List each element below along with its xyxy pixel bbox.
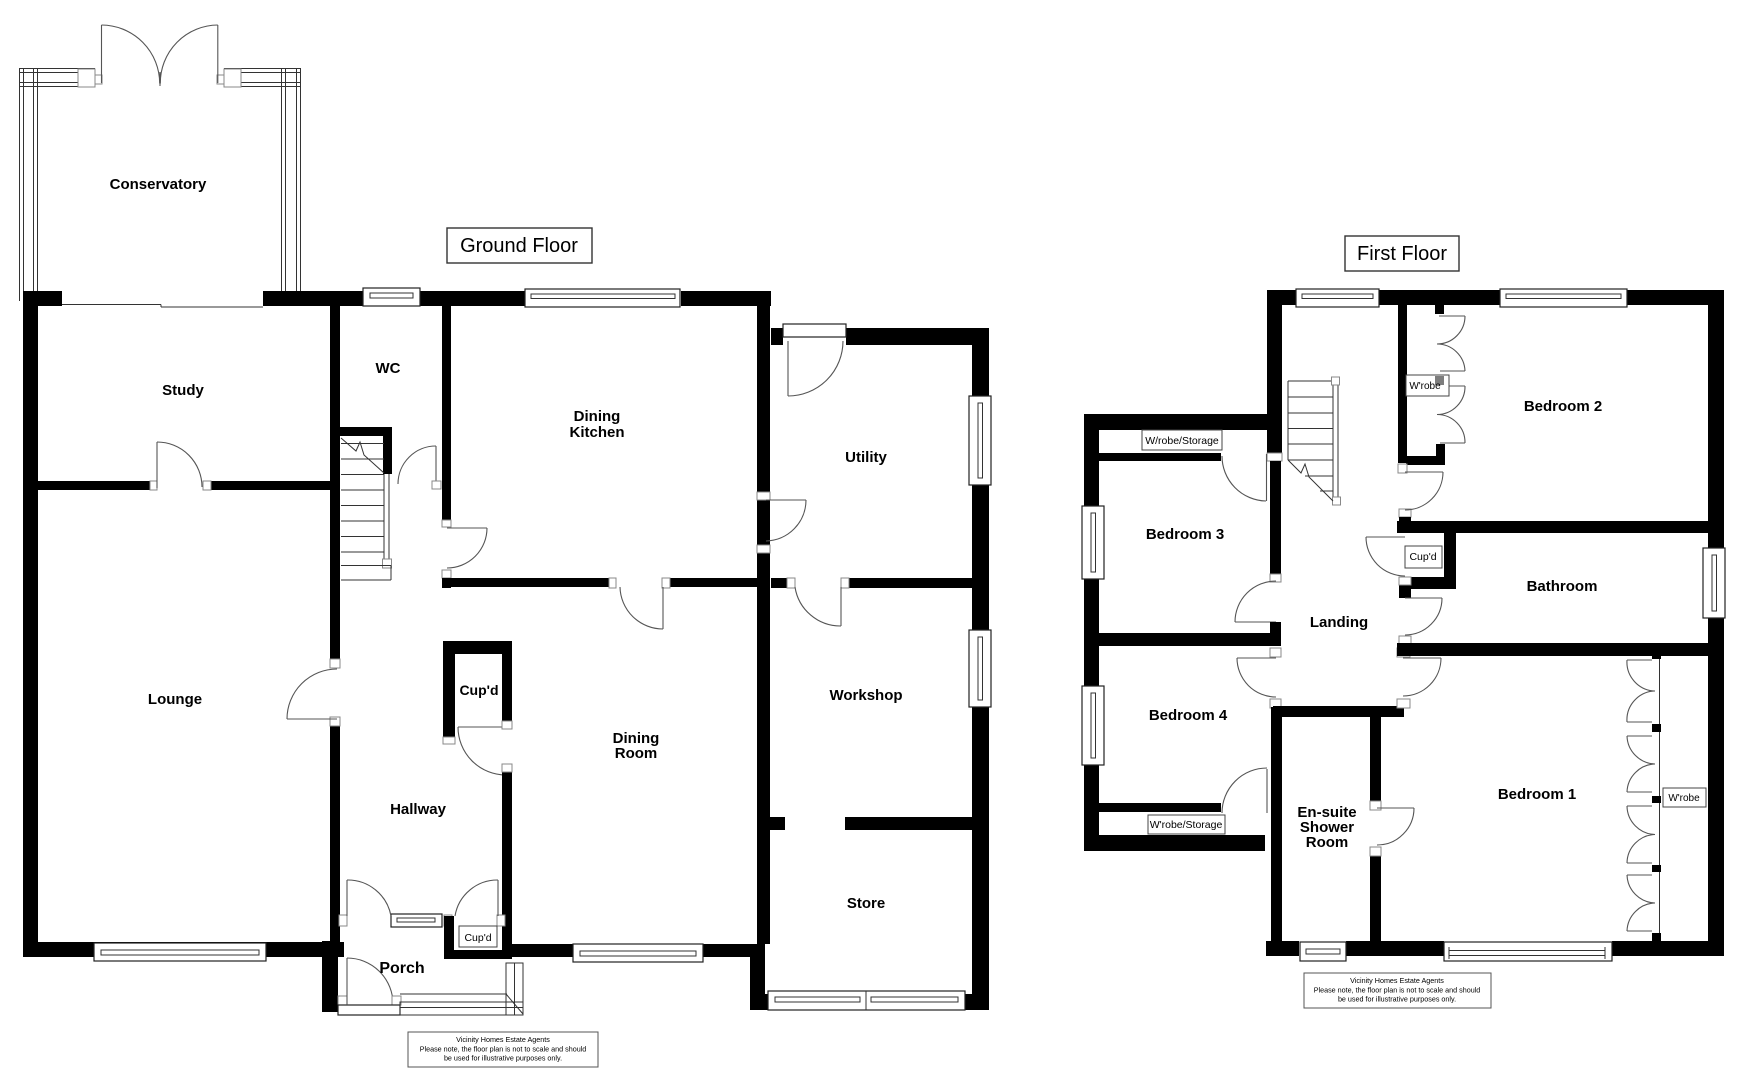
svg-text:be used for illustrative purpo: be used for illustrative purposes only. bbox=[444, 1054, 562, 1063]
svg-text:Kitchen: Kitchen bbox=[569, 424, 624, 441]
svg-text:W'robe/Storage: W'robe/Storage bbox=[1150, 819, 1223, 831]
svg-text:W'robe: W'robe bbox=[1409, 381, 1441, 392]
svg-text:Room: Room bbox=[615, 745, 658, 762]
svg-text:Lounge: Lounge bbox=[148, 691, 202, 708]
svg-text:Please note, the floor plan is: Please note, the floor plan is not to sc… bbox=[420, 1044, 587, 1053]
svg-text:Bedroom 3: Bedroom 3 bbox=[1146, 526, 1224, 543]
svg-text:Vicinity Homes Estate Agents: Vicinity Homes Estate Agents bbox=[456, 1035, 550, 1044]
svg-text:Dining: Dining bbox=[574, 408, 621, 425]
svg-text:First Floor: First Floor bbox=[1357, 243, 1447, 265]
svg-text:Bedroom 4: Bedroom 4 bbox=[1149, 707, 1228, 724]
svg-text:Landing: Landing bbox=[1310, 614, 1368, 631]
svg-text:Bedroom 1: Bedroom 1 bbox=[1498, 786, 1576, 803]
svg-text:Conservatory: Conservatory bbox=[110, 176, 207, 193]
svg-text:Utility: Utility bbox=[845, 449, 887, 466]
svg-text:Hallway: Hallway bbox=[390, 801, 447, 818]
svg-text:Workshop: Workshop bbox=[829, 687, 902, 704]
svg-text:Ground Floor: Ground Floor bbox=[460, 235, 578, 257]
svg-text:be used for illustrative purpo: be used for illustrative purposes only. bbox=[1338, 995, 1456, 1004]
svg-text:Bedroom 2: Bedroom 2 bbox=[1524, 398, 1602, 415]
svg-text:Cup'd: Cup'd bbox=[464, 932, 491, 944]
svg-text:W'robe: W'robe bbox=[1668, 793, 1700, 804]
svg-text:W/robe/Storage: W/robe/Storage bbox=[1145, 435, 1219, 447]
svg-text:Vicinity Homes Estate Agents: Vicinity Homes Estate Agents bbox=[1350, 976, 1444, 985]
svg-text:Study: Study bbox=[162, 382, 204, 399]
svg-text:Please note, the floor plan is: Please note, the floor plan is not to sc… bbox=[1314, 985, 1481, 994]
svg-text:Room: Room bbox=[1306, 834, 1349, 851]
svg-text:Bathroom: Bathroom bbox=[1527, 578, 1598, 595]
svg-text:Cup'd: Cup'd bbox=[1409, 551, 1436, 563]
svg-text:Store: Store bbox=[847, 895, 885, 912]
svg-text:Porch: Porch bbox=[379, 960, 424, 977]
svg-text:Cup'd: Cup'd bbox=[459, 682, 498, 698]
svg-text:WC: WC bbox=[376, 360, 401, 377]
